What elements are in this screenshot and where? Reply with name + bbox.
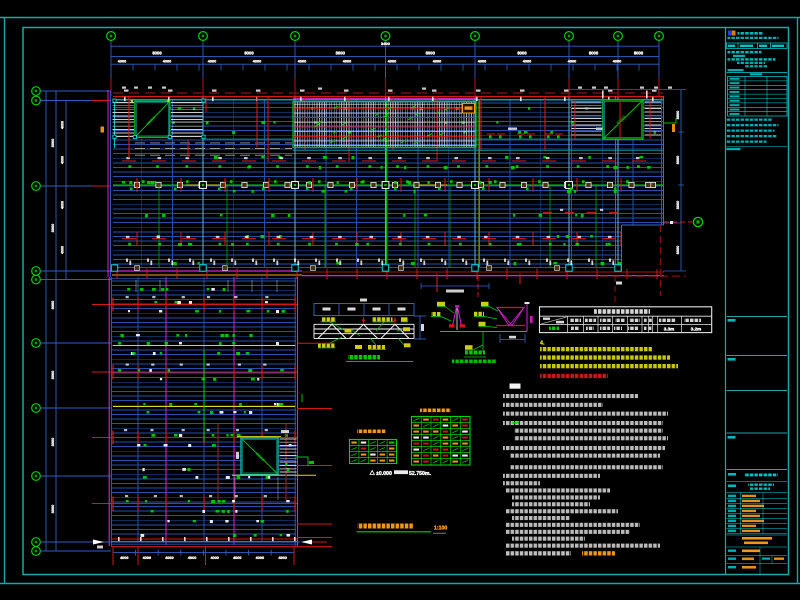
svg-text:±0.000: ±0.000 [376,471,392,477]
svg-text:8000: 8000 [676,111,680,119]
svg-text:4000: 4000 [120,556,128,560]
svg-text:4000: 4000 [61,246,65,254]
svg-text:4000: 4000 [208,60,216,64]
svg-text:8000: 8000 [676,201,680,209]
svg-text:4000: 4000 [343,60,351,64]
svg-text:4000: 4000 [433,60,441,64]
svg-text:3.3m: 3.3m [664,327,674,332]
svg-text:4000: 4000 [256,556,264,560]
svg-text:4000: 4000 [253,60,261,64]
svg-text:8000: 8000 [676,156,680,164]
svg-text:8000: 8000 [589,51,599,56]
svg-text:4000: 4000 [61,121,65,129]
svg-text:4000: 4000 [233,556,241,560]
svg-text:4000: 4000 [388,60,396,64]
svg-text:8000: 8000 [51,371,55,379]
svg-text:8000: 8000 [634,51,644,56]
svg-text:4000: 4000 [478,60,486,64]
svg-text:4000: 4000 [188,556,196,560]
svg-text:4000: 4000 [118,60,126,64]
svg-text:3400: 3400 [381,41,391,46]
svg-text:4000: 4000 [210,556,218,560]
svg-text:8000: 8000 [336,51,346,56]
svg-text:4000: 4000 [165,556,173,560]
svg-text:8000: 8000 [152,51,162,56]
svg-text:52.750m.: 52.750m. [409,471,431,477]
svg-text:4000: 4000 [298,60,306,64]
svg-text:8000: 8000 [51,301,55,309]
svg-text:8000: 8000 [244,51,254,56]
svg-text:8000: 8000 [51,139,55,147]
svg-text:4000: 4000 [613,60,621,64]
svg-text:1:100: 1:100 [434,526,447,532]
svg-text:4.: 4. [540,340,545,346]
svg-text:4000: 4000 [568,60,576,64]
svg-text:8000: 8000 [51,438,55,446]
svg-text:8000: 8000 [51,505,55,513]
svg-text:4000: 4000 [61,201,65,209]
svg-text:8000: 8000 [51,224,55,232]
svg-text:4000: 4000 [61,156,65,164]
svg-text:4000: 4000 [278,556,286,560]
svg-text:3.2m: 3.2m [691,327,701,332]
svg-text:8000: 8000 [676,246,680,254]
svg-text:4000: 4000 [143,556,151,560]
svg-text:8000: 8000 [517,51,527,56]
svg-text:8000: 8000 [426,51,436,56]
svg-text:4000: 4000 [523,60,531,64]
svg-text:4000: 4000 [163,60,171,64]
